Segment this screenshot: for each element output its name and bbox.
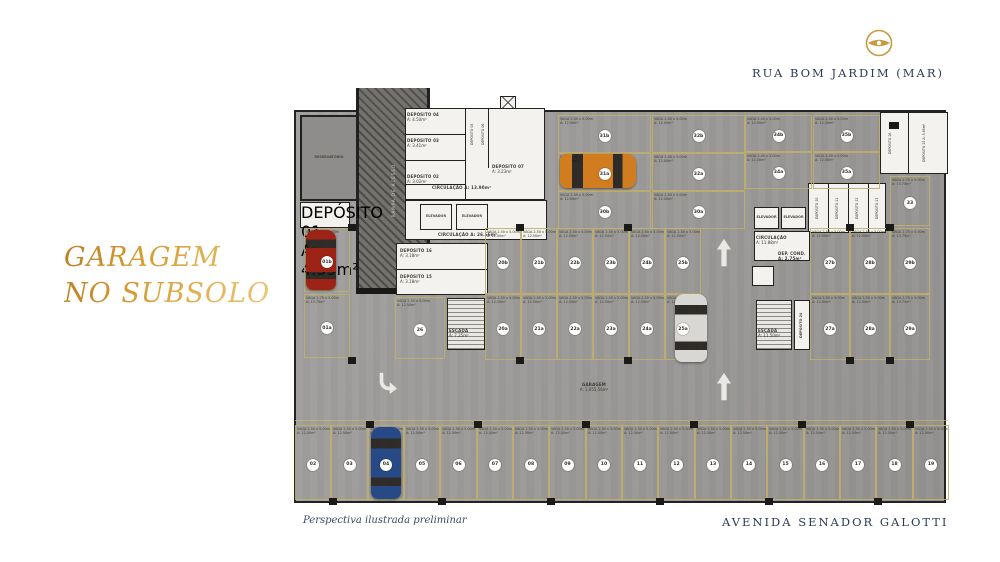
plan-label-line: A: 11.50m² bbox=[758, 333, 780, 338]
room-wall-g bbox=[828, 183, 829, 233]
room-elev-r2: ELEVADOR bbox=[781, 207, 806, 229]
ramp-label: RAMPA DE ACESSO bbox=[391, 164, 396, 217]
room-dep-03: DEPÓSITO 03A: 3.41m² bbox=[407, 138, 463, 158]
parking-spot-label: VAGA 2.40 x 5.00mA: 12.00m² bbox=[815, 117, 848, 126]
up-arrow-icon bbox=[714, 238, 736, 268]
plan-label-line: CIRCULAÇÃO A: 13.90m² bbox=[432, 185, 491, 190]
parking-spot-label: VAGA 2.50 x 5.00mA: 12.50m² bbox=[842, 427, 875, 436]
plan-label-line: A: 12.50m² bbox=[595, 300, 614, 304]
parking-spot-label: VAGA 2.50 x 5.00mA: 12.50m² bbox=[812, 230, 845, 239]
plan-label-line: A: 4.50m² bbox=[407, 117, 427, 122]
plan-label-line: A: 12.50m² bbox=[442, 431, 461, 435]
parking-spot-number-02: 02 bbox=[307, 459, 319, 471]
plan-label-line: A: 12.50m² bbox=[515, 431, 534, 435]
pillar bbox=[846, 224, 854, 231]
room-reservatorio: RESERVATÓRIO bbox=[300, 115, 358, 201]
pillar bbox=[624, 224, 632, 231]
plan-label-line: A: 12.50m² bbox=[487, 300, 506, 304]
plan-label-line: A: 3.18m² bbox=[400, 253, 420, 258]
parking-spot-label: VAGA 2.50 x 5.00mA: 12.50m² bbox=[660, 427, 693, 436]
parking-spot-label: VAGA 2.50 x 5.00mA: 12.50m² bbox=[852, 296, 885, 305]
parking-spot-label: VAGA 2.50 x 5.00mA: 12.50m² bbox=[523, 230, 556, 239]
plan-label-line: A: 12.50m² bbox=[631, 300, 650, 304]
room-antecamara bbox=[752, 266, 774, 286]
room-label: ELEVADOR bbox=[426, 215, 446, 219]
parking-spot-label: VAGA 2.50 x 5.00mA: 12.50m² bbox=[852, 230, 885, 239]
room-elev-l1: ELEVADOR bbox=[420, 204, 452, 230]
room-dep-24: DEPÓSITO 24 bbox=[794, 300, 810, 350]
plan-label-line: A: 13.75m² bbox=[892, 300, 911, 304]
parking-spot-label: VAGA 2.50 x 5.00mA: 12.50m² bbox=[631, 296, 664, 305]
pillar bbox=[329, 498, 337, 505]
plan-label-line: A: 12.00m² bbox=[815, 121, 834, 125]
brand-logo-icon bbox=[860, 24, 898, 62]
parking-spot-number-16: 16 bbox=[816, 459, 828, 471]
plan-label-line: A: 12.50m² bbox=[479, 431, 498, 435]
parking-spot-label: VAGA 2.50 x 5.00mA: 12.50m² bbox=[697, 427, 730, 436]
room-dep-07: DEPÓSITO 07A: 3.23m² bbox=[492, 164, 544, 184]
parking-spot-number-08: 08 bbox=[525, 459, 537, 471]
street-label-bottom: AVENIDA SENADOR GALOTTI bbox=[722, 515, 948, 529]
plan-label-line: A: 12.50m² bbox=[397, 303, 416, 307]
room-wall-i bbox=[868, 183, 869, 233]
street-label-top: RUA BOM JARDIM (MAR) bbox=[752, 66, 944, 80]
room-dep-15: DEPÓSITO 15A: 3.18m² bbox=[400, 274, 480, 292]
plan-label-line: A: 12.50m² bbox=[733, 431, 752, 435]
parking-spot-label: VAGA 2.50 x 5.00mA: 12.50m² bbox=[915, 427, 948, 436]
parking-spot-label: VAGA 2.50 x 5.00mA: 12.50m² bbox=[806, 427, 839, 436]
plan-label-line: A: 12.50m² bbox=[852, 234, 871, 238]
pillar bbox=[874, 498, 882, 505]
room-circ-3: CIRCULAÇÃOA: 11.88m² bbox=[756, 235, 808, 251]
pillar bbox=[886, 357, 894, 364]
room-dep-06: DEPÓSITO 06 bbox=[478, 110, 488, 158]
parking-spot-number-29a: 29a bbox=[904, 323, 916, 335]
parking-spot-label: VAGA 2.50 x 5.00mA: 12.50m² bbox=[812, 296, 845, 305]
parking-spot-number-06: 06 bbox=[453, 459, 465, 471]
plan-label-line: A: 7.25m² bbox=[449, 333, 469, 338]
parking-spot-number-22b: 22b bbox=[569, 257, 581, 269]
pillar bbox=[582, 421, 590, 428]
parking-spot-label: VAGA 2.50 x 5.00mA: 12.50m² bbox=[595, 230, 628, 239]
parking-spot-label: VAGA 2.50 x 5.00mA: 12.50m² bbox=[733, 427, 766, 436]
parking-spot-label: VAGA 2.75 x 5.00mA: 13.75m² bbox=[892, 178, 925, 187]
plan-label-line: A: 12.00m² bbox=[560, 121, 579, 125]
parking-spot-label: VAGA 2.50 x 5.00mA: 12.50m² bbox=[523, 296, 556, 305]
floor-plan: RAMPA DE ACESSORESERVATÓRIODEPÓSITO 01A:… bbox=[292, 88, 952, 508]
room-wall-j bbox=[908, 112, 909, 174]
pillar bbox=[516, 357, 524, 364]
parking-spot-number-34b: 34b bbox=[773, 130, 785, 142]
parking-spot-number-03: 03 bbox=[344, 459, 356, 471]
curve-arrow-icon bbox=[376, 372, 398, 402]
page-title-line1: GARAGEM bbox=[64, 242, 221, 273]
pillar bbox=[765, 498, 773, 505]
room-dep-04: DEPÓSITO 04A: 4.50m² bbox=[407, 112, 463, 132]
parking-spot-number-27a: 27a bbox=[824, 323, 836, 335]
pillar bbox=[438, 498, 446, 505]
parking-spot-label: VAGA 2.40 x 5.00mA: 12.00m² bbox=[654, 193, 687, 202]
plan-label-line: A: 12.00m² bbox=[747, 121, 766, 125]
plan-label-line: A: 12.50m² bbox=[697, 431, 716, 435]
parking-spot-number-17: 17 bbox=[852, 459, 864, 471]
plan-label-line: A: 12.50m² bbox=[523, 234, 542, 238]
up-arrow-icon bbox=[714, 372, 736, 402]
plan-label-line: A: 12.50m² bbox=[624, 431, 643, 435]
room-wall-f bbox=[396, 269, 488, 270]
room-label: ELEVADOR bbox=[462, 215, 482, 219]
room-dep-25: DEPÓSITO 25 A: 5.88m² bbox=[918, 116, 930, 170]
plan-label-line: A: 12.50m² bbox=[333, 431, 352, 435]
room-stair-1-label: ESCADAA: 7.25m² bbox=[449, 328, 485, 346]
plan-label-line: A: 13.75m² bbox=[892, 182, 911, 186]
plan-label-line: A: 12.50m² bbox=[878, 431, 897, 435]
parking-spot-number-27b: 27b bbox=[824, 257, 836, 269]
room-wall-c bbox=[405, 134, 465, 135]
parking-spot-label: VAGA 2.75 x 5.00mA: 13.75m² bbox=[892, 230, 925, 239]
page-title-line2: NO SUBSOLO bbox=[64, 278, 270, 309]
plan-label-line: A: 12.50m² bbox=[297, 431, 316, 435]
parking-spot-label: VAGA 2.50 x 5.00mA: 12.50m² bbox=[624, 427, 657, 436]
plan-label-line: A: 12.50m² bbox=[487, 234, 506, 238]
room-label: DEPÓSITO 24 bbox=[800, 301, 804, 349]
parking-spot-number-35a: 35a bbox=[841, 167, 853, 179]
plan-label-line: A: 12.50m² bbox=[523, 300, 542, 304]
parking-spot-label: VAGA 2.50 x 5.00mA: 12.50m² bbox=[515, 427, 548, 436]
parking-spot-number-32b: 32b bbox=[693, 130, 705, 142]
parking-spot-number-34a: 34a bbox=[773, 167, 785, 179]
parking-spot-number-21a: 21a bbox=[533, 323, 545, 335]
parking-spot-label: VAGA 2.50 x 5.00mA: 12.50m² bbox=[333, 427, 366, 436]
parking-spot-number-11: 11 bbox=[634, 459, 646, 471]
parking-spot-number-29b: 29b bbox=[904, 257, 916, 269]
parking-spot-number-30a: 30a bbox=[693, 206, 705, 218]
parking-spot-label: VAGA 2.50 x 5.00mA: 12.50m² bbox=[588, 427, 621, 436]
parking-spot-number-23a: 23a bbox=[605, 323, 617, 335]
parking-spot-number-01b: 01b bbox=[321, 256, 333, 268]
pillar bbox=[366, 421, 374, 428]
parking-spot-number-31b: 31b bbox=[599, 130, 611, 142]
plan-label-line: A: 3.18m² bbox=[400, 279, 420, 284]
parking-spot-label: VAGA 2.40 x 5.00mA: 12.00m² bbox=[560, 193, 593, 202]
pillar bbox=[474, 421, 482, 428]
room-elev-r1: ELEVADOR bbox=[754, 207, 779, 229]
parking-spot-label: VAGA 2.50 x 5.00mA: 12.50m² bbox=[487, 296, 520, 305]
plan-label-line: A: 12.50m² bbox=[667, 234, 686, 238]
pillar bbox=[624, 357, 632, 364]
plan-label-line: A: 12.00m² bbox=[815, 158, 834, 162]
parking-spot-number-32a: 32a bbox=[693, 168, 705, 180]
room-dep-23: DEPÓSITO 23 bbox=[871, 185, 883, 231]
parking-spot-number-31a: 31a bbox=[599, 168, 611, 180]
parking-spot-label: VAGA 2.40 x 5.00mA: 12.00m² bbox=[747, 117, 780, 126]
plan-label-line: A: 12.00m² bbox=[654, 197, 673, 201]
page: RUA BOM JARDIM (MAR) AVENIDA SENADOR GAL… bbox=[0, 0, 1000, 562]
parking-spot-number-33: 33 bbox=[904, 197, 916, 209]
parking-spot-number-25b: 25b bbox=[677, 257, 689, 269]
plan-label-line: A: 12.50m² bbox=[551, 431, 570, 435]
pillar bbox=[886, 224, 894, 231]
garage-area-label: GARAGEM A: 1.055,56m² bbox=[554, 382, 634, 396]
parking-spot-number-23b: 23b bbox=[605, 257, 617, 269]
room-label: RESERVATÓRIO bbox=[315, 156, 344, 160]
parking-spot-number-05: 05 bbox=[416, 459, 428, 471]
plan-label-line: A: 12.00m² bbox=[560, 197, 579, 201]
parking-spot-label: VAGA 2.50 x 5.00mA: 12.50m² bbox=[559, 296, 592, 305]
plan-label-line: A: 13.75m² bbox=[306, 300, 325, 304]
room-dep-20: DEPÓSITO 20 bbox=[811, 185, 823, 231]
room-dep-21: DEPÓSITO 21 bbox=[831, 185, 843, 231]
room-label: ELEVADOR bbox=[783, 216, 803, 220]
room-wall-b bbox=[488, 108, 489, 168]
parking-spot-label: VAGA 2.50 x 5.00mA: 12.50m² bbox=[442, 427, 475, 436]
parking-spot-number-15: 15 bbox=[780, 459, 792, 471]
plan-label-line: A: 12.50m² bbox=[842, 431, 861, 435]
parking-spot-number-14: 14 bbox=[743, 459, 755, 471]
parking-spot-label: VAGA 2.75 x 5.00mA: 13.75m² bbox=[892, 296, 925, 305]
plan-label-line: A: 12.50m² bbox=[812, 234, 831, 238]
room-dep-05: DEPÓSITO 05 bbox=[467, 110, 477, 158]
plan-label-line: A: 12.50m² bbox=[660, 431, 679, 435]
parking-spot-number-19: 19 bbox=[925, 459, 937, 471]
parking-spot-number-07: 07 bbox=[489, 459, 501, 471]
parking-spot-label: VAGA 2.50 x 5.00mA: 12.50m² bbox=[551, 427, 584, 436]
disclaimer-caption: Perspectiva ilustrada preliminar bbox=[303, 515, 467, 526]
parking-spot-number-20b: 20b bbox=[497, 257, 509, 269]
pillar bbox=[348, 357, 356, 364]
parking-spot-label: VAGA 2.40 x 5.00mA: 12.00m² bbox=[815, 154, 848, 163]
plan-label-line: A: 12.50m² bbox=[595, 234, 614, 238]
parking-spot-number-01a: 01a bbox=[321, 322, 333, 334]
parking-spot-label: VAGA 2.50 x 5.00mA: 12.50m² bbox=[631, 230, 664, 239]
plan-label-line: A: 3.41m² bbox=[407, 143, 427, 148]
parking-spot-label: VAGA 2.50 x 5.00mA: 12.50m² bbox=[406, 427, 439, 436]
pillar bbox=[906, 421, 914, 428]
parking-spot-number-18: 18 bbox=[889, 459, 901, 471]
parking-spot-label: VAGA 2.50 x 5.00mA: 12.50m² bbox=[667, 230, 700, 239]
plan-label-line: A: 12.00m² bbox=[654, 121, 673, 125]
parking-spot-number-04: 04 bbox=[380, 459, 392, 471]
plan-label-line: A: 12.50m² bbox=[588, 431, 607, 435]
room-dep-cond: DEP. COND. A: 2.75m² bbox=[778, 251, 810, 261]
plan-label-line: A: 12.50m² bbox=[806, 431, 825, 435]
parking-spot-number-28b: 28b bbox=[864, 257, 876, 269]
parking-spot-number-22a: 22a bbox=[569, 323, 581, 335]
parking-spot-number-35b: 35b bbox=[841, 130, 853, 142]
plan-label-line: A: 12.50m² bbox=[812, 300, 831, 304]
parking-spot-number-26: 26 bbox=[414, 324, 426, 336]
plan-label-line: A: 3.23m² bbox=[492, 169, 512, 174]
parking-spot-number-10: 10 bbox=[598, 459, 610, 471]
parking-spot-label: VAGA 2.50 x 5.00mA: 12.50m² bbox=[595, 296, 628, 305]
page-title: GARAGEM NO SUBSOLO bbox=[64, 240, 284, 311]
room-circ-1: CIRCULAÇÃO A: 13.90m² bbox=[432, 185, 512, 197]
parking-spot-label: VAGA 2.40 x 5.00mA: 12.00m² bbox=[654, 117, 687, 126]
pillar bbox=[516, 224, 524, 231]
plan-label-line: A: 12.50m² bbox=[631, 234, 650, 238]
parking-spot-label: VAGA 2.50 x 5.00mA: 12.50m² bbox=[878, 427, 911, 436]
plan-label-line: A: 11.88m² bbox=[756, 240, 778, 245]
plan-label-line: DEP. COND. A: 2.75m² bbox=[778, 251, 806, 261]
pillar bbox=[547, 498, 555, 505]
parking-spot-label: VAGA 2.40 x 5.00mA: 12.00m² bbox=[560, 117, 593, 126]
parking-spot-label: VAGA 2.40 x 5.00mA: 12.00m² bbox=[654, 155, 687, 164]
room-elev-l2: ELEVADOR bbox=[456, 204, 488, 230]
pillar bbox=[690, 421, 698, 428]
room-stair-2-label: ESCADAA: 11.50m² bbox=[758, 328, 792, 346]
parking-spot-label: VAGA 2.75 x 5.00mA: 13.75m² bbox=[306, 296, 339, 305]
room-strip-line bbox=[295, 420, 948, 421]
plan-label-line: A: 12.50m² bbox=[559, 300, 578, 304]
plan-label-line: A: 12.50m² bbox=[915, 431, 934, 435]
parking-spot-label: VAGA 2.50 x 5.00mA: 12.50m² bbox=[397, 299, 430, 308]
parking-spot-label: VAGA 2.50 x 5.00mA: 12.50m² bbox=[559, 230, 592, 239]
plan-label-line: A: 13.75m² bbox=[892, 234, 911, 238]
plan-label-line: A: 12.00m² bbox=[747, 158, 766, 162]
plan-label-line: A: 3.02m² bbox=[407, 179, 427, 184]
pillar bbox=[846, 357, 854, 364]
parking-spot-number-25a: 25a bbox=[677, 323, 689, 335]
plan-label-line: A: 12.50m² bbox=[559, 234, 578, 238]
parking-spot-label: VAGA 2.50 x 5.00mA: 12.50m² bbox=[297, 427, 330, 436]
plan-label-line: A: 12.50m² bbox=[406, 431, 425, 435]
pillar bbox=[798, 421, 806, 428]
plan-label-line: A: 12.50m² bbox=[769, 431, 788, 435]
plan-label-line: A: 12.50m² bbox=[852, 300, 871, 304]
parking-spot-label: VAGA 2.40 x 5.00mA: 12.00m² bbox=[747, 154, 780, 163]
room-dep-16: DEPÓSITO 16A: 3.18m² bbox=[400, 248, 480, 266]
parking-spot-number-09: 09 bbox=[562, 459, 574, 471]
parking-spot-number-24b: 24b bbox=[641, 257, 653, 269]
parking-spot-label: VAGA 2.50 x 5.00mA: 12.50m² bbox=[769, 427, 802, 436]
room-label: ELEVADOR bbox=[756, 216, 776, 220]
parking-spot-number-21b: 21b bbox=[533, 257, 545, 269]
pillar bbox=[656, 498, 664, 505]
plan-label-line: A: 12.00m² bbox=[654, 159, 673, 163]
room-wall-d bbox=[405, 160, 465, 161]
parking-spot-label: VAGA 2.50 x 5.00mA: 12.50m² bbox=[479, 427, 512, 436]
room-shaft-x bbox=[500, 96, 516, 109]
parking-spot-number-20a: 20a bbox=[497, 323, 509, 335]
parking-spot-number-12: 12 bbox=[671, 459, 683, 471]
parking-spot-number-30b: 30b bbox=[599, 206, 611, 218]
room-dep-01: DEPÓSITO 01A: 4.59m² bbox=[300, 202, 350, 228]
orange-car bbox=[560, 154, 636, 188]
parking-spot-label: VAGA 2.50 x 5.00mA: 12.50m² bbox=[487, 230, 520, 239]
pillar bbox=[348, 224, 356, 231]
parking-spot-number-28a: 28a bbox=[864, 323, 876, 335]
parking-spot-number-13: 13 bbox=[707, 459, 719, 471]
parking-spot-number-24a: 24a bbox=[641, 323, 653, 335]
room-tr-object bbox=[889, 122, 899, 129]
